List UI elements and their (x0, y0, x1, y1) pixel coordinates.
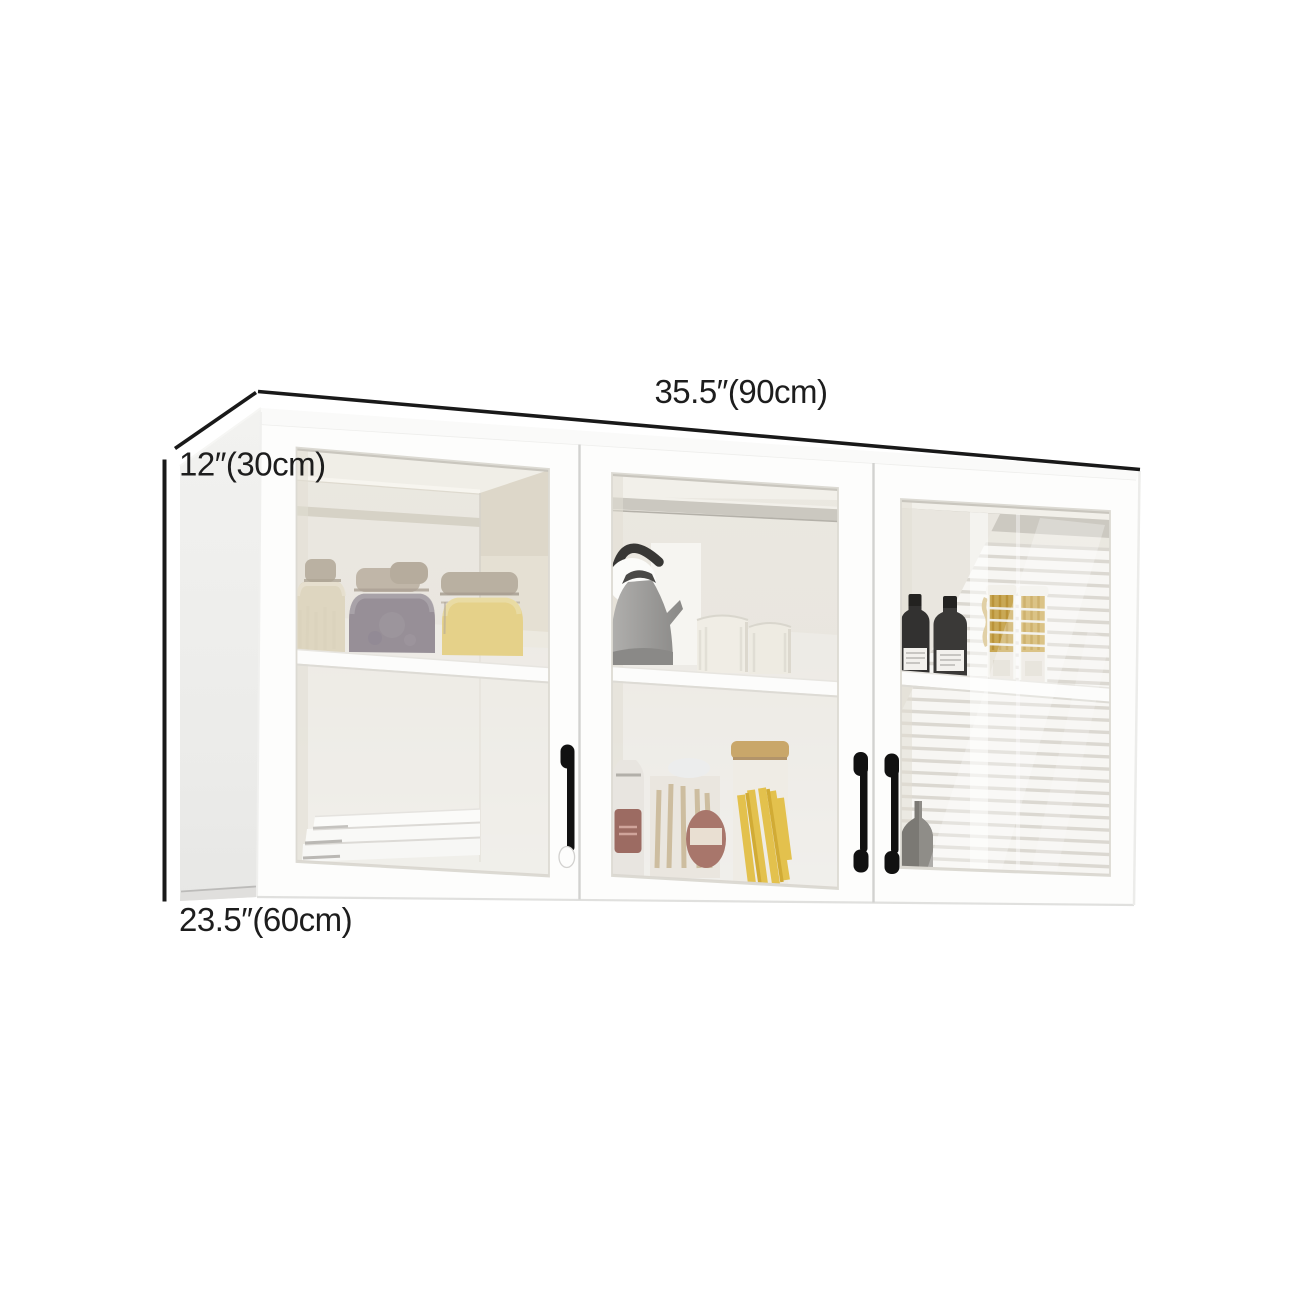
svg-text:23.5″(60cm): 23.5″(60cm) (179, 901, 352, 938)
svg-text:35.5″(90cm): 35.5″(90cm) (654, 373, 827, 410)
svg-text:12″(30cm): 12″(30cm) (179, 446, 326, 483)
